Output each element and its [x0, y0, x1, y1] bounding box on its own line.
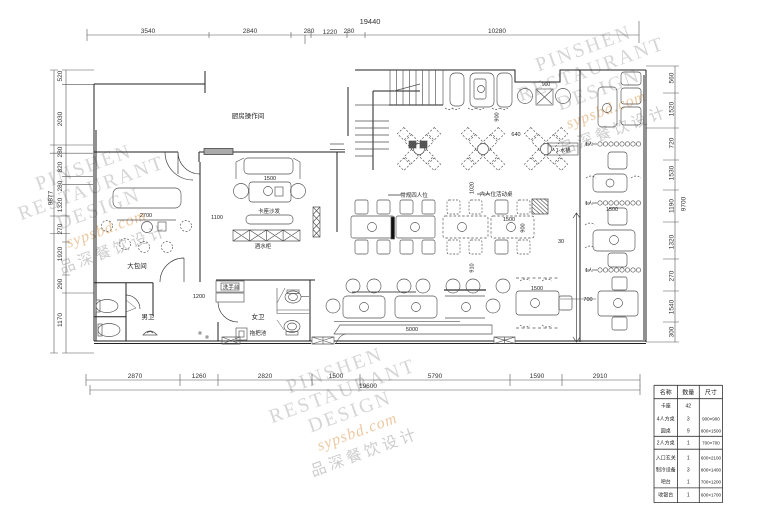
svg-text:酒水柜: 酒水柜	[255, 242, 272, 250]
svg-text:270: 270	[669, 270, 676, 281]
svg-text:圆桌: 圆桌	[661, 428, 671, 435]
svg-text:2870: 2870	[128, 373, 143, 380]
svg-text:厨房操作间: 厨房操作间	[232, 111, 265, 120]
svg-text:2910: 2910	[593, 373, 608, 380]
svg-text:5790: 5790	[428, 373, 443, 380]
svg-text:2840: 2840	[243, 28, 258, 35]
svg-text:5000: 5000	[406, 327, 418, 333]
svg-text:720: 720	[669, 137, 676, 148]
svg-text:吧台: 吧台	[661, 479, 671, 486]
svg-text:560: 560	[669, 72, 676, 83]
svg-text:3: 3	[687, 417, 690, 423]
svg-text:1540: 1540	[669, 299, 676, 314]
svg-text:女卫: 女卫	[252, 312, 266, 321]
svg-text:1520: 1520	[669, 101, 676, 116]
svg-text:1500: 1500	[503, 217, 515, 223]
svg-text:1: 1	[687, 441, 690, 447]
svg-text:520: 520	[57, 70, 64, 81]
svg-text:1020: 1020	[470, 182, 476, 194]
svg-text:拖把池: 拖把池	[250, 329, 267, 337]
svg-text:9700: 9700	[681, 196, 688, 211]
svg-text:4人方桌: 4人方桌	[657, 416, 675, 423]
svg-text:30: 30	[558, 239, 564, 245]
svg-text:1170: 1170	[57, 313, 64, 327]
svg-text:1500: 1500	[531, 286, 543, 292]
svg-text:1: 1	[687, 493, 690, 499]
svg-text:3: 3	[687, 468, 690, 474]
svg-text:280: 280	[344, 28, 355, 35]
svg-text:1200: 1200	[193, 294, 205, 300]
svg-text:洗手台: 洗手台	[223, 283, 240, 291]
svg-text:280: 280	[304, 28, 315, 35]
svg-text:800×1500: 800×1500	[701, 429, 722, 434]
svg-text:卡座: 卡座	[661, 403, 671, 410]
svg-text:42: 42	[686, 404, 692, 410]
svg-text:3540: 3540	[141, 28, 156, 35]
svg-text:700×700: 700×700	[702, 441, 720, 446]
svg-text:1: 1	[687, 480, 690, 486]
svg-text:19440: 19440	[360, 17, 381, 26]
svg-text:900: 900	[542, 82, 551, 88]
svg-text:300: 300	[669, 326, 676, 337]
svg-text:1530: 1530	[669, 165, 676, 180]
svg-text:600×2100: 600×2100	[701, 456, 722, 461]
svg-text:1920: 1920	[57, 246, 64, 261]
svg-text:1500: 1500	[606, 207, 618, 213]
svg-text:900: 900	[521, 223, 527, 232]
svg-text:10280: 10280	[488, 28, 506, 35]
svg-text:数量: 数量	[682, 389, 694, 397]
svg-text:2030: 2030	[57, 111, 64, 126]
svg-text:900: 900	[495, 112, 501, 121]
svg-text:尺寸: 尺寸	[705, 389, 717, 397]
svg-text:大包间: 大包间	[127, 261, 147, 270]
svg-text:1500: 1500	[329, 373, 344, 380]
svg-text:1590: 1590	[530, 373, 545, 380]
svg-text:卡座沙发: 卡座沙发	[258, 207, 281, 215]
svg-text:1320: 1320	[57, 197, 64, 212]
svg-text:2700: 2700	[140, 213, 152, 219]
svg-text:2820: 2820	[258, 373, 273, 380]
svg-text:2人方桌: 2人方桌	[657, 440, 675, 447]
svg-text:280: 280	[57, 180, 64, 191]
svg-text:1-水槽: 1-水槽	[556, 147, 570, 154]
svg-text:910: 910	[470, 263, 476, 272]
svg-text:600×1700: 600×1700	[701, 493, 722, 498]
svg-text:1220: 1220	[323, 29, 338, 36]
svg-text:1100: 1100	[211, 215, 223, 221]
svg-text:640: 640	[511, 132, 520, 138]
svg-text:700×1200: 700×1200	[701, 480, 722, 485]
svg-text:1320: 1320	[669, 234, 676, 249]
svg-text:1人: 1人	[585, 201, 593, 207]
svg-text:270: 270	[57, 223, 64, 234]
svg-text:820: 820	[57, 161, 64, 172]
svg-text:9877: 9877	[48, 190, 55, 205]
svg-text:制冷设备: 制冷设备	[656, 467, 676, 474]
svg-text:1: 1	[687, 456, 690, 462]
svg-text:1人: 1人	[585, 142, 593, 148]
svg-text:六人位活动桌: 六人位活动桌	[479, 190, 513, 198]
svg-text:800×1400: 800×1400	[701, 468, 722, 473]
svg-text:1260: 1260	[192, 373, 207, 380]
svg-text:290: 290	[57, 278, 64, 289]
svg-text:1190: 1190	[669, 199, 676, 213]
svg-text:900×900: 900×900	[702, 417, 720, 422]
svg-text:1人: 1人	[585, 268, 593, 274]
svg-text:700: 700	[583, 297, 592, 303]
svg-text:收银台: 收银台	[658, 492, 673, 499]
svg-text:9: 9	[687, 429, 690, 435]
svg-text:常规四人位: 常规四人位	[400, 191, 428, 199]
svg-text:名称: 名称	[660, 389, 672, 397]
svg-text:1500: 1500	[264, 176, 276, 182]
svg-text:19600: 19600	[359, 383, 377, 390]
svg-text:男卫: 男卫	[142, 313, 156, 321]
svg-text:280: 280	[57, 146, 64, 157]
svg-text:入口玄关: 入口玄关	[656, 455, 676, 462]
